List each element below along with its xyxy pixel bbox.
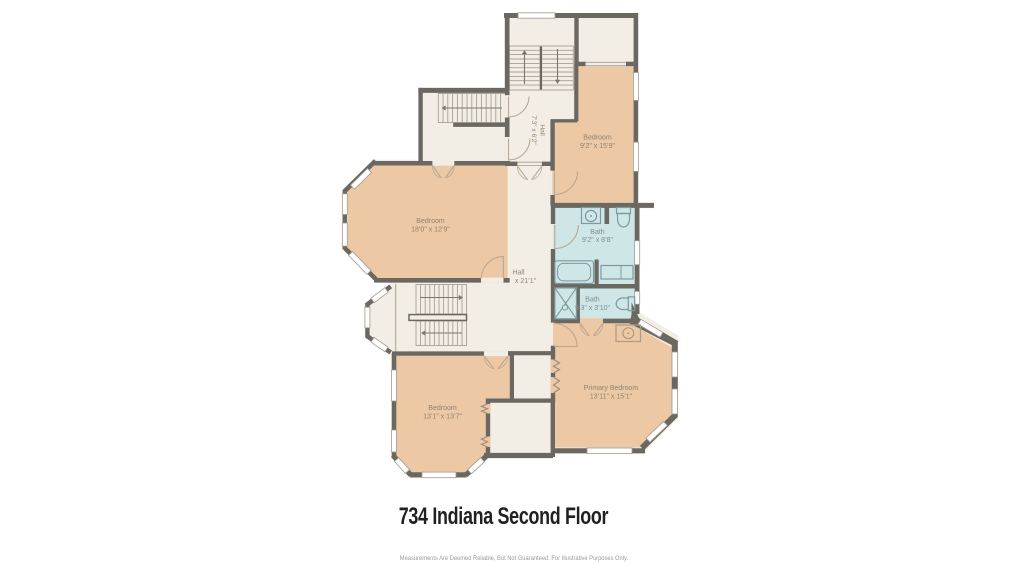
svg-text:Bath: Bath <box>585 297 600 304</box>
svg-text:Hall: Hall <box>539 124 546 136</box>
svg-text:9’2" x 8’8": 9’2" x 8’8" <box>582 237 614 244</box>
svg-text:x 21’1": x 21’1" <box>515 278 537 285</box>
svg-text:9’3" x 3’10": 9’3" x 3’10" <box>575 305 610 312</box>
svg-text:Primary Bedroom: Primary Bedroom <box>584 385 639 392</box>
svg-text:Bath: Bath <box>590 229 605 236</box>
svg-text:Bedroom: Bedroom <box>428 405 457 412</box>
svg-text:9’2" x 15’9": 9’2" x 15’9" <box>580 143 615 150</box>
svg-text:Hall: Hall <box>512 270 525 277</box>
svg-text:13’11" x 15’1": 13’11" x 15’1" <box>590 393 633 400</box>
svg-text:13’1" x 13’7": 13’1" x 13’7" <box>423 413 462 420</box>
svg-text:Bedroom: Bedroom <box>583 135 612 142</box>
svg-text:Bedroom: Bedroom <box>416 218 445 225</box>
svg-text:18’0" x 12’9": 18’0" x 12’9" <box>411 226 450 233</box>
svg-text:7’3" x 6’2": 7’3" x 6’2" <box>530 115 537 145</box>
